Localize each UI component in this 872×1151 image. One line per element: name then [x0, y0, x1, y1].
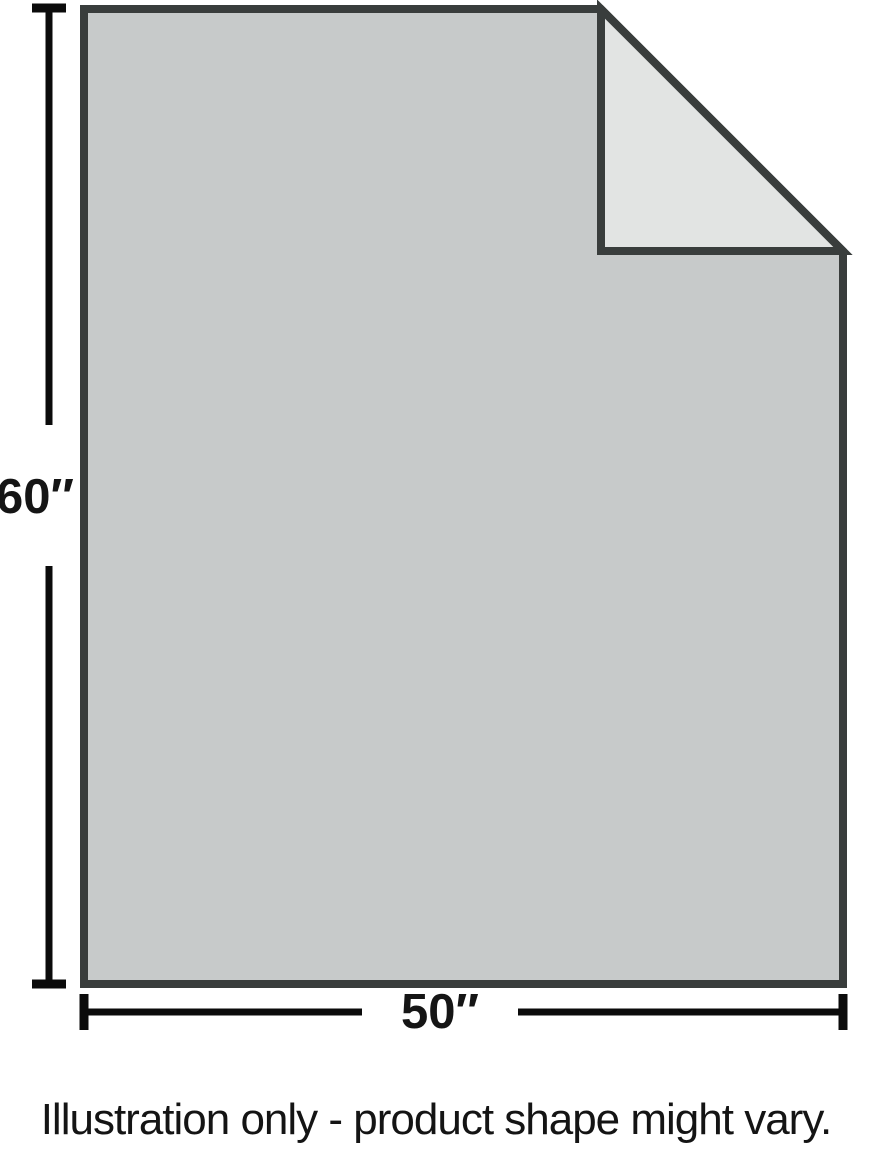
blanket-diagram	[0, 0, 872, 1151]
height-label: 60″	[0, 473, 74, 522]
width-label: 50″	[362, 988, 518, 1037]
folded-corner	[601, 9, 843, 251]
product-illustration: 60″ 50″ Illustration only - product shap…	[0, 0, 872, 1151]
caption: Illustration only - product shape might …	[0, 1096, 872, 1144]
